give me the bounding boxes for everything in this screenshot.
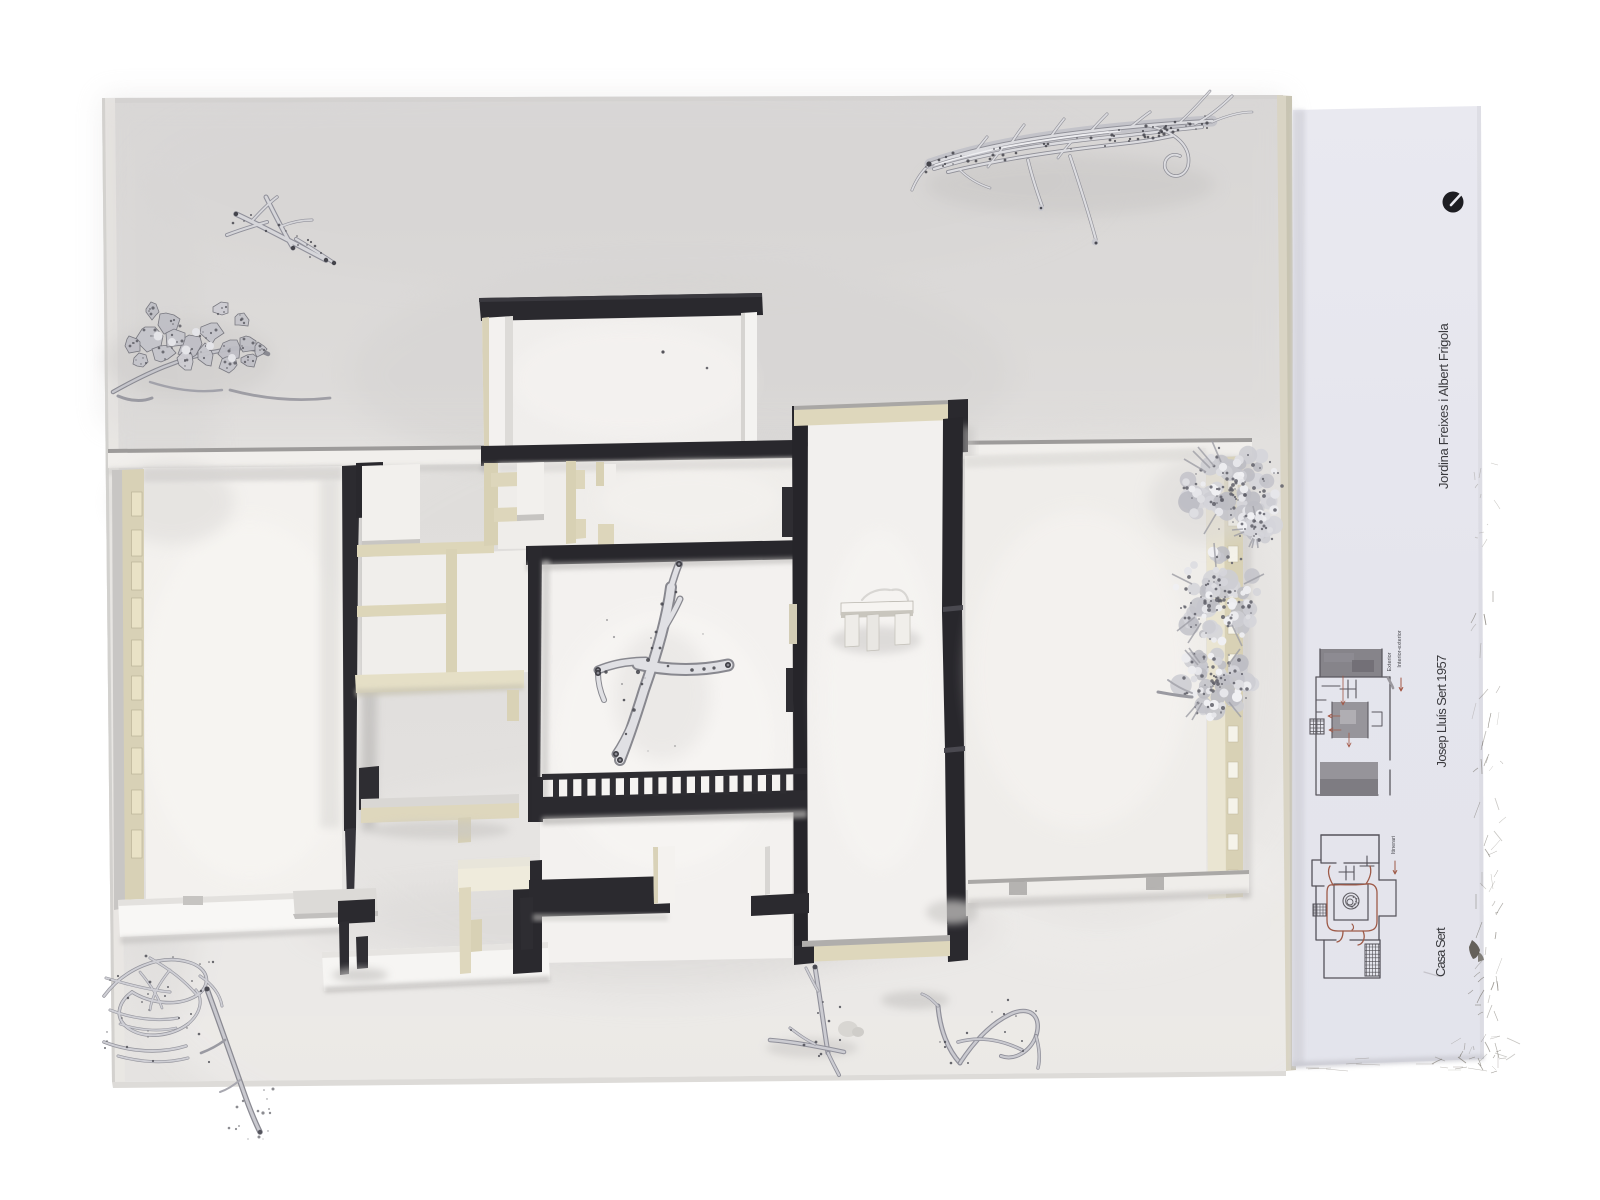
svg-text:Interior-exterior: Interior-exterior (1397, 630, 1403, 667)
svg-text:Exterior: Exterior (1387, 652, 1393, 671)
svg-text:Jordina Freixes i Albert Frigo: Jordina Freixes i Albert Frigola (1436, 322, 1451, 489)
svg-text:Casa Sert: Casa Sert (1433, 927, 1448, 977)
svg-text:Josep Lluís Sert 1957: Josep Lluís Sert 1957 (1434, 655, 1449, 768)
svg-text:Itinerari: Itinerari (1391, 836, 1397, 854)
